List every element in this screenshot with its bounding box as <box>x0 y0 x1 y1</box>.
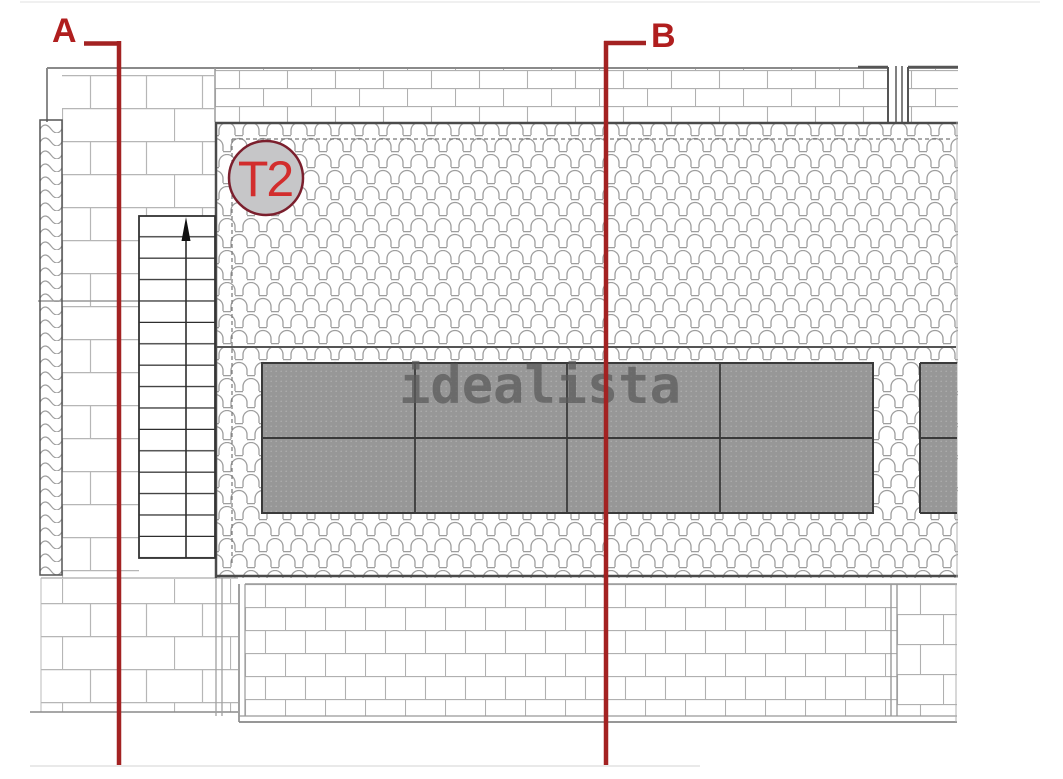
staircase <box>139 216 215 558</box>
terrace-paving-hatch-right <box>897 584 957 716</box>
solar-panel-array-partial <box>920 363 957 513</box>
floor-plan-image: idealista T2 A B <box>0 0 1063 779</box>
unit-type-badge: T2 <box>229 141 303 215</box>
floor-plan-drawing: idealista T2 A B <box>0 0 1063 779</box>
stair-treads <box>139 216 215 558</box>
terrace-paving-hatch <box>245 584 957 716</box>
unit-badge-label: T2 <box>238 151 293 207</box>
parapet-brick-hatch <box>215 68 958 122</box>
side-tile-strip <box>40 120 62 575</box>
section-a-label: A <box>52 12 77 50</box>
left-terrace <box>30 578 238 712</box>
section-b-label: B <box>651 17 676 55</box>
lower-terrace <box>239 584 957 722</box>
watermark-text: idealista <box>399 356 681 416</box>
